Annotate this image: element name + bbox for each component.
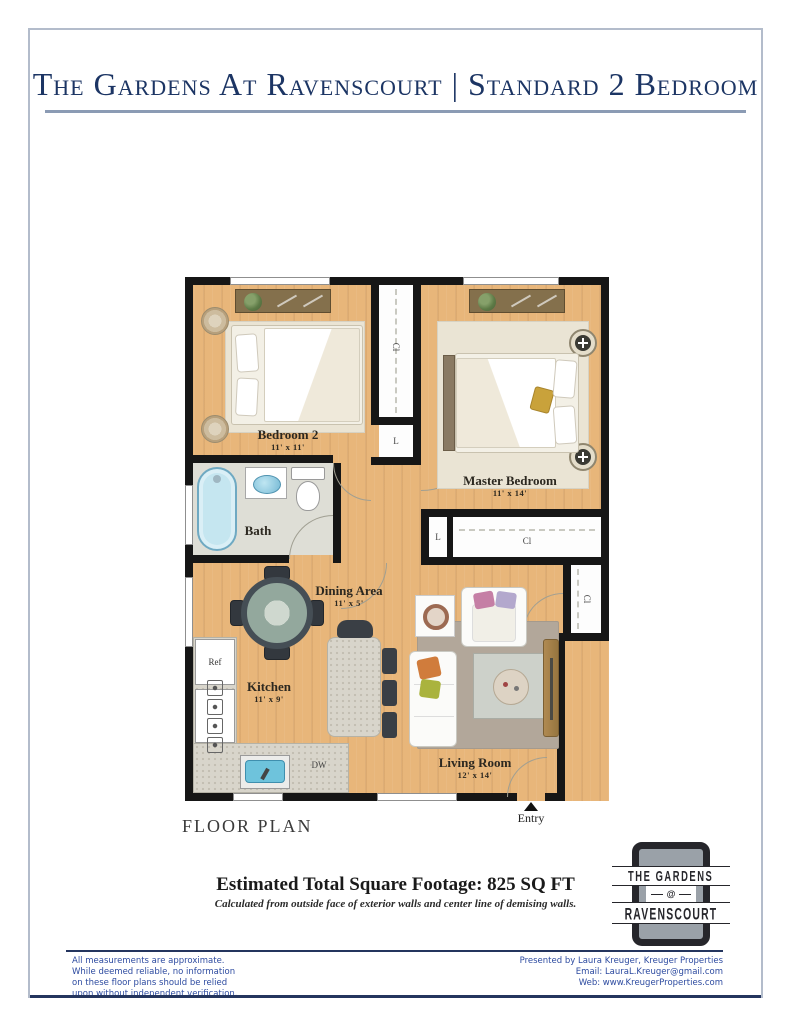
- wall: [371, 277, 379, 425]
- disclaimer-line: All measurements are approximate.: [72, 956, 238, 967]
- tray-item: [503, 682, 508, 687]
- contact-line: Presented by Laura Kreuger, Kreuger Prop…: [520, 956, 723, 967]
- kitchen-island: [327, 637, 381, 737]
- tv-console: [543, 639, 559, 737]
- wall: [413, 417, 421, 465]
- bed-pillow: [235, 377, 259, 416]
- toilet-tank: [291, 467, 325, 480]
- throw-pillow: [495, 591, 517, 610]
- throw-pillow: [473, 590, 495, 609]
- logo-line1: THE GARDENS: [628, 867, 713, 885]
- armchair: [461, 587, 527, 647]
- dresser-decor: [511, 295, 531, 308]
- bar-stool: [382, 648, 397, 674]
- throw-pillow: [419, 679, 441, 700]
- logo-band-bottom: RAVENSCOURT: [612, 902, 730, 924]
- window: [185, 485, 193, 545]
- room-name: Kitchen: [213, 679, 325, 694]
- room-label-bath: Bath: [213, 523, 303, 538]
- burner: [207, 718, 223, 734]
- dresser: [235, 289, 331, 313]
- tub-drain: [213, 475, 221, 483]
- room-label-kitchen: Kitchen 11' x 9': [213, 679, 325, 704]
- room-label-bedroom2: Bedroom 2 11' x 11': [223, 427, 353, 452]
- property-logo: THE GARDENS @ RAVENSCOURT: [612, 842, 730, 946]
- flyer-page: The Gardens At Ravenscourt | Standard 2 …: [0, 0, 791, 1024]
- room-dims: 11' x 14': [440, 488, 580, 498]
- headboard: [443, 355, 455, 451]
- wall: [557, 633, 609, 641]
- bed-pillow: [553, 405, 578, 444]
- window: [377, 793, 457, 801]
- plant: [478, 293, 496, 311]
- logo-band-at: @: [646, 886, 696, 902]
- bathtub: [197, 467, 237, 551]
- bar-stool: [382, 680, 397, 706]
- wall: [429, 509, 601, 517]
- title-underline: [45, 110, 746, 113]
- window: [233, 793, 283, 801]
- closet-label: Cl: [577, 585, 597, 613]
- logo-line2: @: [667, 889, 676, 899]
- chair-cushion: [472, 604, 516, 642]
- bedroom2-bed: [231, 325, 363, 425]
- bed-pillow: [552, 359, 577, 399]
- logo-band-top: THE GARDENS: [612, 866, 730, 886]
- contact-info: Presented by Laura Kreuger, Kreuger Prop…: [520, 956, 723, 989]
- sink-vanity: [245, 467, 287, 499]
- sofa: [409, 651, 457, 747]
- contact-line: Email: LauraL.Kreuger@gmail.com: [520, 967, 723, 978]
- table-pattern: [575, 335, 591, 351]
- logo-rule: [651, 894, 663, 895]
- dresser-decor: [537, 295, 557, 308]
- footer-rule-bottom: [30, 995, 761, 998]
- closet-label: Cl: [453, 531, 601, 551]
- window: [463, 277, 559, 285]
- room-name: Bedroom 2: [223, 427, 353, 442]
- kitchen-sink: [240, 755, 290, 789]
- footer-rule-top: [66, 950, 723, 952]
- tray: [493, 669, 529, 705]
- island-chair: [337, 620, 373, 638]
- decorative-plate: [423, 604, 449, 630]
- wall: [185, 455, 333, 463]
- room-label-living: Living Room 12' x 14': [413, 755, 537, 780]
- bed-duvet: [264, 328, 360, 422]
- plant: [244, 293, 262, 311]
- linen-label-master: L: [429, 517, 447, 557]
- wall: [185, 555, 289, 563]
- disclaimer: All measurements are approximate. While …: [72, 956, 238, 1000]
- tv-screen: [550, 658, 553, 720]
- room-name: Dining Area: [293, 583, 405, 598]
- side-table: [415, 595, 455, 637]
- wall: [601, 277, 609, 641]
- sink-basin: [253, 475, 281, 494]
- room-label-master: Master Bedroom 11' x 14': [440, 473, 580, 498]
- dresser-decor: [277, 295, 297, 308]
- disclaimer-line: While deemed reliable, no information: [72, 967, 238, 978]
- logo-line3: RAVENSCOURT: [625, 903, 718, 923]
- bar-stool: [382, 712, 397, 738]
- entry-marker: Entry: [496, 802, 566, 826]
- room-dims: 11' x 11': [223, 442, 353, 452]
- master-bed: [455, 353, 579, 453]
- room-dims: 11' x 9': [213, 694, 325, 704]
- floor-plan-label: FLOOR PLAN: [182, 816, 313, 837]
- wall: [545, 793, 565, 801]
- wall: [447, 517, 453, 557]
- cushion-line: [414, 716, 454, 717]
- wall: [563, 565, 571, 633]
- room-dims: 12' x 14': [413, 770, 537, 780]
- room-name: Bath: [213, 523, 303, 538]
- coffee-table: [473, 653, 545, 719]
- floor-plan: Cl L L Cl Cl: [185, 277, 609, 801]
- tray-item: [514, 686, 519, 691]
- logo-rule: [679, 894, 691, 895]
- wall: [413, 277, 421, 417]
- disclaimer-line: on these floor plans should be relied: [72, 978, 238, 989]
- linen-label: L: [379, 425, 413, 457]
- page-title: The Gardens At Ravenscourt | Standard 2 …: [0, 66, 791, 103]
- closet-label: Cl: [386, 330, 406, 364]
- room-name: Living Room: [413, 755, 537, 770]
- throw-pillow: [416, 656, 442, 680]
- entry-arrow-icon: [524, 802, 538, 811]
- window: [230, 277, 330, 285]
- entry-label: Entry: [496, 811, 566, 826]
- toilet-bowl: [296, 481, 320, 511]
- contact-line: Web: www.KreugerProperties.com: [520, 978, 723, 989]
- room-dims: 11' x 5': [293, 598, 405, 608]
- wall: [421, 557, 601, 565]
- dresser-decor: [303, 295, 323, 308]
- bed-pillow: [235, 333, 260, 372]
- window: [185, 577, 193, 647]
- burner: [207, 737, 223, 753]
- room-label-dining: Dining Area 11' x 5': [293, 583, 405, 608]
- dishwasher-label: DW: [297, 757, 341, 773]
- room-name: Master Bedroom: [440, 473, 580, 488]
- nightstand: [201, 307, 229, 335]
- dresser: [469, 289, 565, 313]
